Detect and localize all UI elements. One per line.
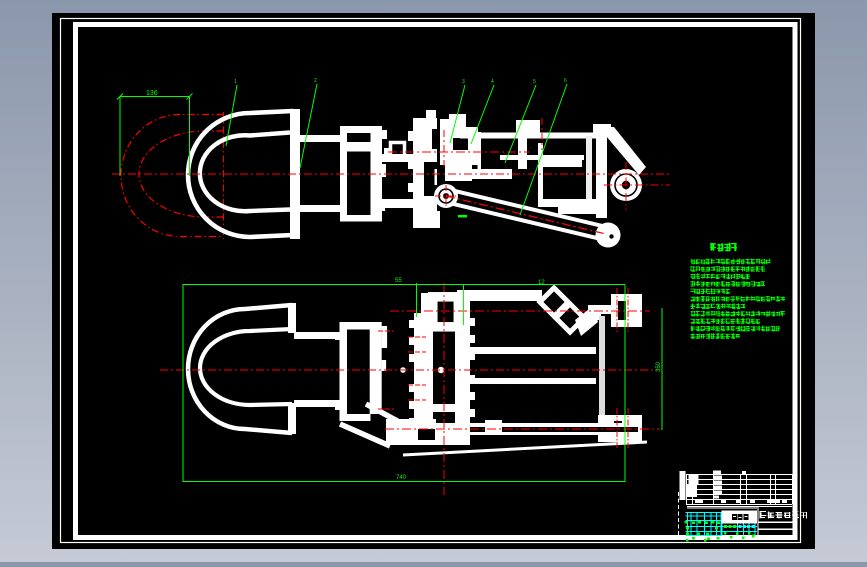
svg-text:6: 6 xyxy=(564,78,567,84)
svg-text:12: 12 xyxy=(538,280,545,286)
svg-text:55: 55 xyxy=(395,278,402,284)
svg-text:3: 3 xyxy=(462,79,465,85)
svg-text:136: 136 xyxy=(146,90,158,97)
svg-text:5: 5 xyxy=(533,79,536,85)
svg-text:350: 350 xyxy=(656,361,662,372)
svg-text:1: 1 xyxy=(234,79,237,85)
svg-text:4: 4 xyxy=(491,79,494,85)
svg-text:2: 2 xyxy=(314,78,317,84)
svg-text:740: 740 xyxy=(396,475,407,481)
